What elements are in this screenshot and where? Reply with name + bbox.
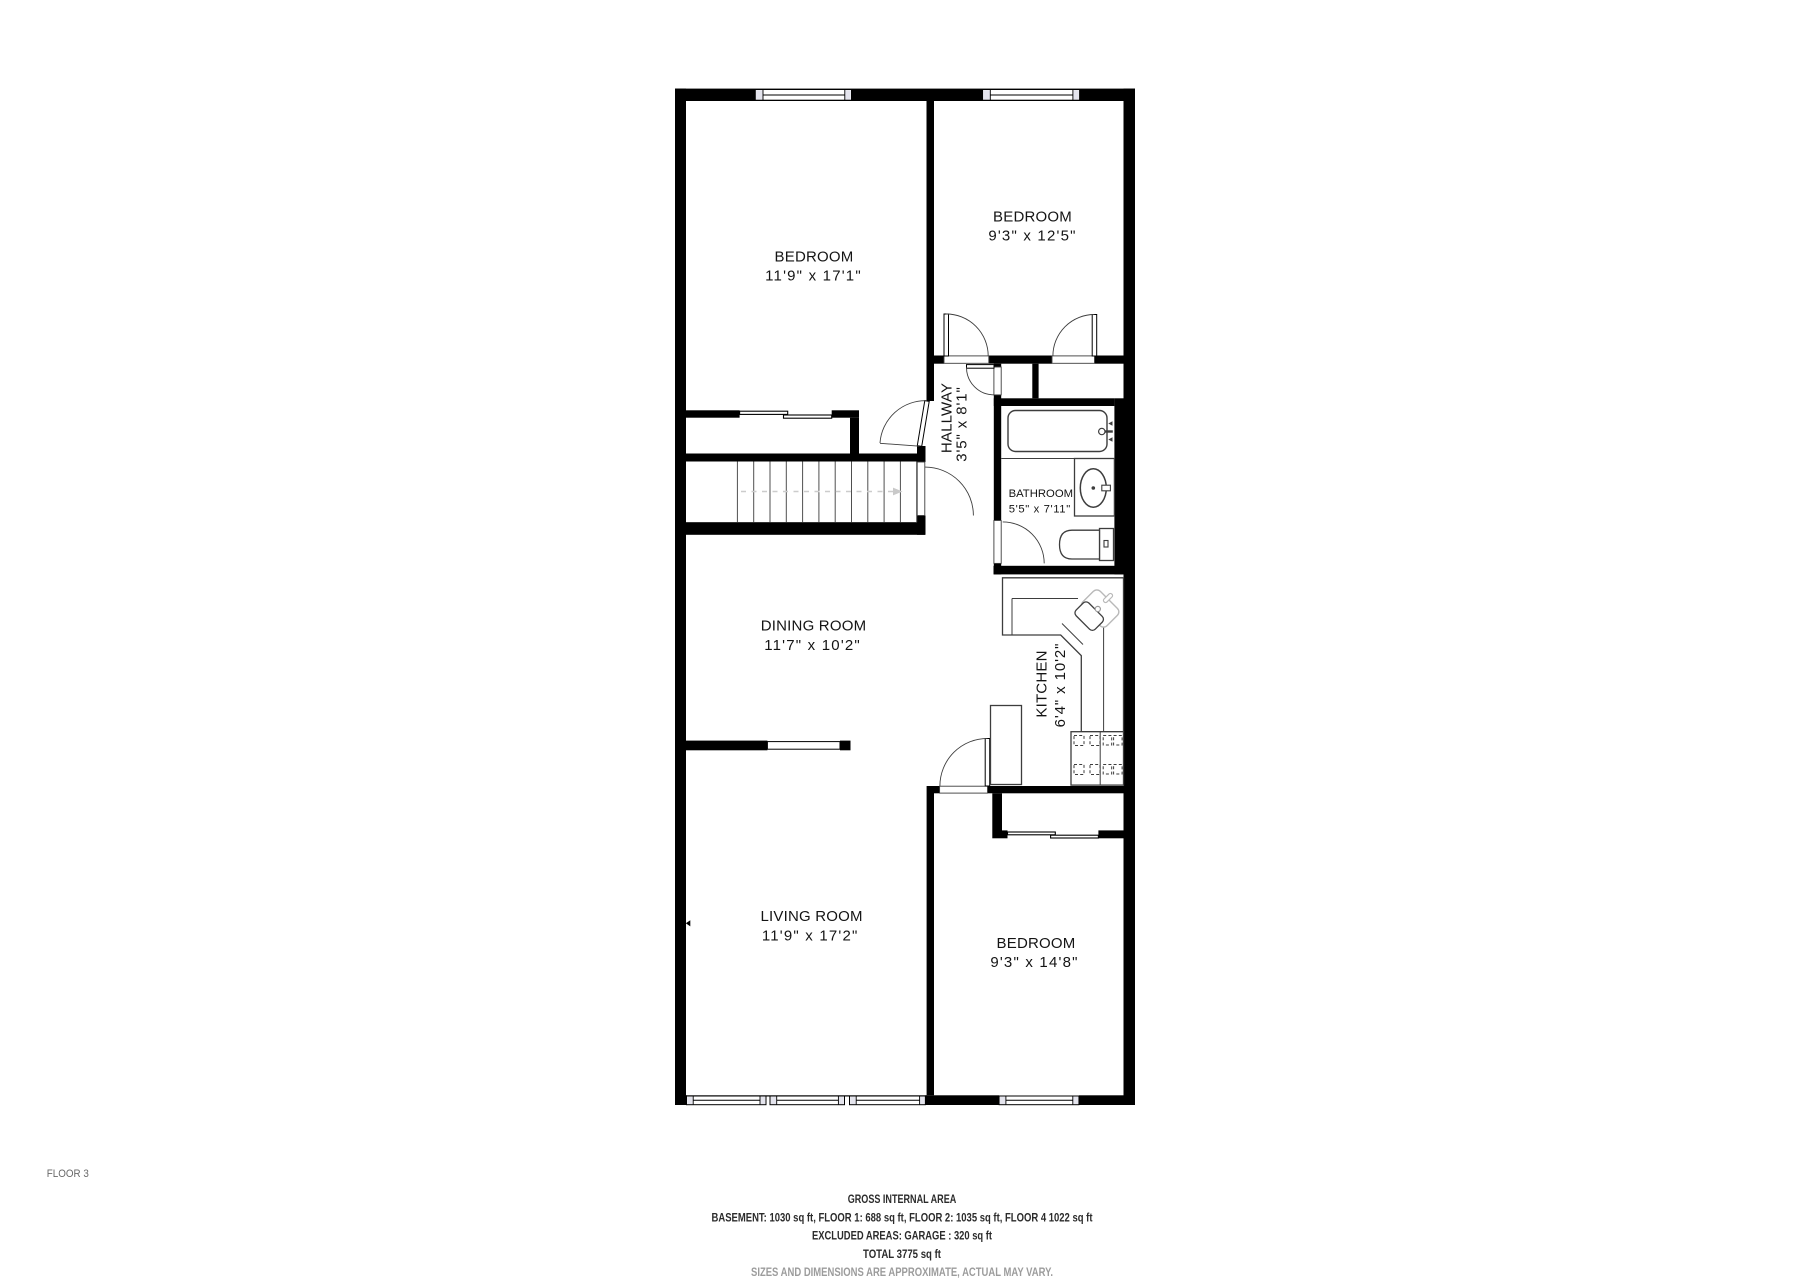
svg-text:LIVING ROOM: LIVING ROOM xyxy=(760,908,862,925)
svg-text:EXCLUDED AREAS: GARAGE : 320 s: EXCLUDED AREAS: GARAGE : 320 sq ft xyxy=(812,1231,992,1243)
svg-text:SIZES AND DIMENSIONS ARE APPRO: SIZES AND DIMENSIONS ARE APPROXIMATE, AC… xyxy=(751,1267,1053,1279)
svg-text:5'5" x 7'11": 5'5" x 7'11" xyxy=(1009,504,1071,516)
svg-text:9'3" x 12'5": 9'3" x 12'5" xyxy=(988,227,1076,244)
svg-text:GROSS INTERNAL AREA: GROSS INTERNAL AREA xyxy=(848,1194,957,1206)
svg-text:FLOOR 3: FLOOR 3 xyxy=(47,1168,89,1180)
svg-text:BEDROOM: BEDROOM xyxy=(997,935,1076,952)
svg-text:KITCHEN: KITCHEN xyxy=(1034,650,1051,717)
svg-text:3'5" x 8'1": 3'5" x 8'1" xyxy=(954,386,971,461)
svg-text:11'9" x 17'2": 11'9" x 17'2" xyxy=(762,927,859,944)
svg-text:9'3" x 14'8": 9'3" x 14'8" xyxy=(990,954,1078,971)
svg-text:11'9" x 17'1": 11'9" x 17'1" xyxy=(765,268,862,285)
svg-text:BEDROOM: BEDROOM xyxy=(993,208,1072,225)
svg-text:11'7" x 10'2": 11'7" x 10'2" xyxy=(764,637,861,654)
svg-text:6'4" x 10'2": 6'4" x 10'2" xyxy=(1052,643,1069,728)
svg-text:BATHROOM: BATHROOM xyxy=(1009,488,1073,500)
svg-text:BEDROOM: BEDROOM xyxy=(775,249,854,266)
svg-text:TOTAL 3775 sq ft: TOTAL 3775 sq ft xyxy=(863,1249,941,1261)
svg-text:DINING ROOM: DINING ROOM xyxy=(761,617,867,634)
svg-text:BASEMENT: 1030 sq ft, FLOOR 1:: BASEMENT: 1030 sq ft, FLOOR 1: 688 sq ft… xyxy=(712,1212,1093,1224)
